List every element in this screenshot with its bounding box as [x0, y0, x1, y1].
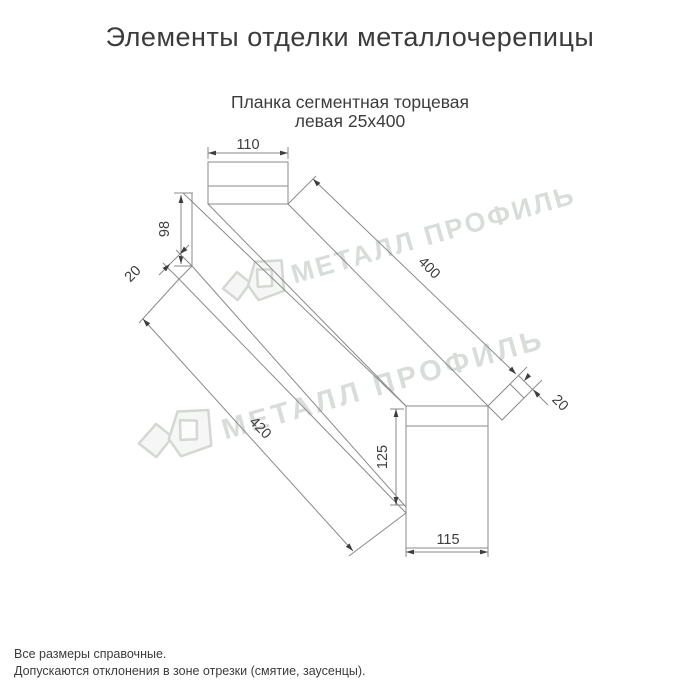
footer-notes: Все размеры справочные. Допускаются откл…	[14, 646, 366, 679]
metall-profil-logo-icon	[133, 403, 218, 466]
metall-profil-logo-icon	[218, 255, 290, 309]
left-end-edge	[174, 193, 193, 279]
dim-label-110: 110	[236, 137, 259, 153]
dim-height-right: 125	[375, 409, 404, 505]
dim-label-20-left: 20	[122, 263, 145, 286]
right-end-shield	[406, 406, 488, 548]
left-end-flange	[208, 162, 288, 204]
watermark-upper: МЕТАЛЛ ПРОФИЛЬ	[218, 172, 579, 309]
dim-label-400: 400	[415, 254, 443, 282]
footer-note-line1: Все размеры справочные.	[14, 646, 366, 663]
footer-note-line2: Допускаются отклонения в зоне отрезки (с…	[14, 663, 366, 680]
dim-flange-top: 110	[208, 137, 288, 159]
dim-label-98: 98	[157, 221, 173, 237]
technical-drawing-page: Элементы отделки металлочерепицы Планка …	[0, 0, 700, 700]
dim-label-125: 125	[375, 445, 391, 469]
right-end-flap	[488, 384, 524, 420]
dim-label-115: 115	[436, 532, 459, 548]
dim-width-right: 115	[406, 532, 488, 557]
dim-label-20-right: 20	[548, 392, 571, 415]
dim-flap-right: 20	[510, 367, 571, 415]
part-drawing: МЕТАЛЛ ПРОФИЛЬ МЕТАЛЛ ПРОФИЛЬ	[0, 0, 700, 700]
